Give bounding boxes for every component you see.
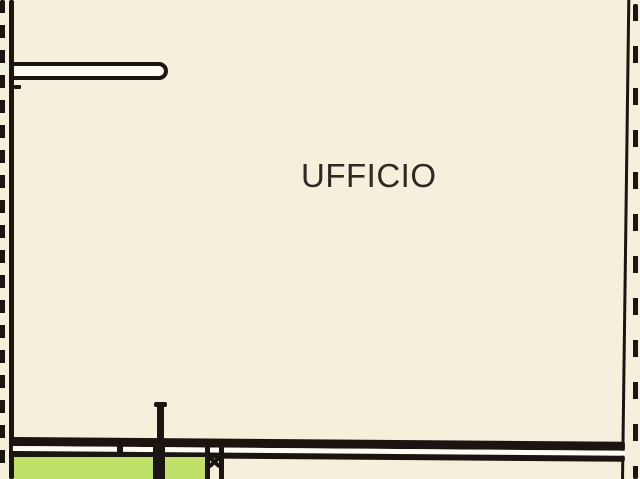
boundary-dashed-line-right — [633, 4, 638, 479]
wall-stub-cap — [154, 402, 167, 407]
boundary-dashed-line-left — [0, 0, 5, 471]
terrace-green-right — [165, 457, 205, 479]
wall-partition-tick — [14, 85, 21, 89]
wall-opening-right-jamb — [219, 446, 224, 479]
terrace-divider-wall — [153, 446, 165, 479]
wall-partition-top-left — [14, 62, 168, 80]
wall-right — [621, 0, 630, 479]
wall-opening-marker — [205, 446, 224, 479]
floor-plan: UFFICIO — [0, 0, 640, 479]
room-label-ufficio: UFFICIO — [301, 159, 436, 192]
terrace-green-left — [14, 457, 153, 479]
